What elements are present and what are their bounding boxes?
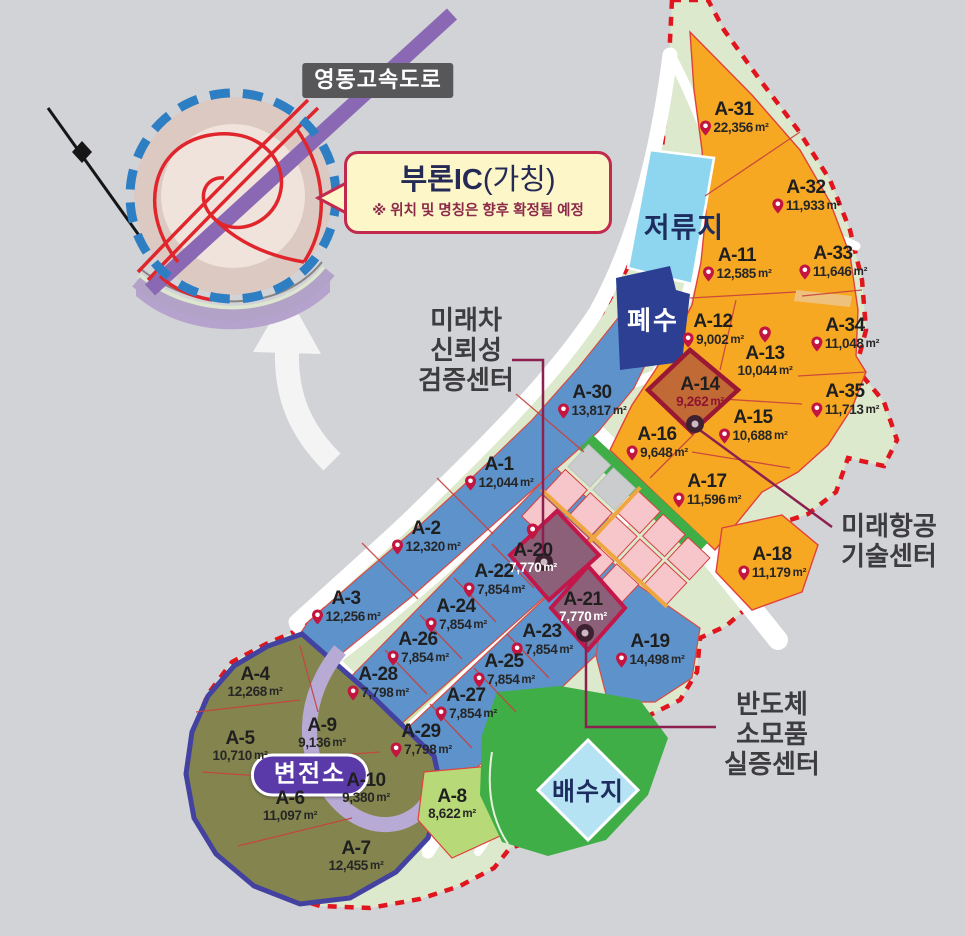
lot-area: 9,002m² — [682, 332, 744, 348]
lot-id: A-3 — [312, 589, 381, 609]
map-pin-icon — [616, 652, 628, 668]
lot-label-A-30: A-3013,817m² — [558, 383, 627, 419]
lot-area: 11,933m² — [772, 198, 840, 214]
map-pin-icon — [347, 685, 359, 701]
lot-area: 8,622m² — [428, 807, 476, 821]
lot-id: A-14 — [676, 375, 724, 395]
lot-id: A-25 — [473, 652, 535, 672]
lot-area: 10,688m² — [719, 428, 788, 444]
lot-id: A-32 — [772, 178, 840, 198]
highway-label: 영동고속도로 — [302, 63, 453, 98]
lot-area: 11,048m² — [811, 336, 879, 352]
lot-area: 12,256m² — [312, 609, 381, 625]
site-plan-map: 영동고속도로 부론IC(가칭) ※ 위치 및 명칭은 향후 확정될 예정 저류지… — [0, 0, 966, 936]
map-pin-icon — [673, 492, 685, 508]
lot-label-A-5: A-510,710m² — [213, 729, 268, 763]
highway-label-pill: 영동고속도로 — [302, 62, 453, 94]
lot-area: 7,798m² — [390, 742, 452, 758]
lot-id: A-30 — [558, 383, 627, 403]
lot-area: 12,320m² — [392, 539, 461, 555]
lot-area: 11,179m² — [738, 565, 806, 581]
lot-label-A-35: A-3511,713m² — [811, 382, 879, 418]
lot-label-A-9: A-99,136m² — [298, 716, 346, 750]
lot-label-A-25: A-257,854m² — [473, 652, 535, 688]
lot-area: 9,136m² — [298, 736, 346, 750]
lot-label-A-4: A-412,268m² — [228, 665, 283, 699]
map-pin-icon — [811, 336, 823, 352]
lot-label-A-31: A-3122,356m² — [700, 100, 769, 136]
lot-label-A-33: A-3311,646m² — [799, 244, 867, 280]
lot-label-A-24: A-247,854m² — [425, 597, 487, 633]
map-pin-icon — [759, 326, 772, 343]
lot-id: A-28 — [347, 665, 409, 685]
lot-area: 14,498m² — [616, 652, 685, 668]
lot-id: A-7 — [329, 839, 384, 859]
lot-area: 9,380m² — [342, 791, 390, 805]
callout-title: 부론IC(가칭) — [400, 166, 555, 195]
lot-id: A-19 — [616, 632, 685, 652]
lot-area: 7,854m² — [435, 706, 497, 722]
lot-id: A-16 — [626, 425, 688, 445]
lot-label-A-15: A-1510,688m² — [719, 408, 788, 444]
lot-area: 10,710m² — [213, 749, 268, 763]
lot-id: A-20 — [509, 541, 557, 561]
map-pin-icon — [700, 120, 712, 136]
lot-id: A-33 — [799, 244, 867, 264]
map-pin-icon — [703, 266, 715, 282]
lot-id: A-29 — [390, 722, 452, 742]
lot-id: A-10 — [342, 771, 390, 791]
annotation-future-aviation: 미래항공 기술센터 — [841, 511, 937, 571]
lot-id: A-21 — [559, 590, 607, 610]
map-pin-icon — [738, 565, 750, 581]
lot-id: A-15 — [719, 408, 788, 428]
lot-label-A-22: A-227,854m² — [463, 562, 525, 598]
lot-id: A-1 — [465, 455, 534, 475]
lot-area: 12,455m² — [329, 859, 384, 873]
lot-label-A-14: A-149,262m² — [676, 375, 724, 409]
annotation-semiconductor: 반도체 소모품 실증센터 — [724, 689, 820, 779]
lot-area: 7,798m² — [347, 685, 409, 701]
lot-id: A-5 — [213, 729, 268, 749]
map-pin-icon — [682, 332, 694, 348]
lot-label-A-32: A-3211,933m² — [772, 178, 840, 214]
lot-label-A-11: A-1112,585m² — [703, 246, 772, 282]
lot-label-A-18: A-1811,179m² — [738, 545, 806, 581]
map-pin-icon — [558, 403, 570, 419]
map-pin-icon — [526, 523, 539, 540]
lot-label-A-28: A-287,798m² — [347, 665, 409, 701]
map-pin-icon — [390, 742, 402, 758]
lot-area: 22,356m² — [700, 120, 769, 136]
lot-id: A-17 — [673, 472, 741, 492]
lot-label-A-3: A-312,256m² — [312, 589, 381, 625]
map-pin-icon — [392, 539, 404, 555]
map-pin-icon — [772, 198, 784, 214]
lot-label-A-2: A-212,320m² — [392, 519, 461, 555]
lot-id: A-31 — [700, 100, 769, 120]
lot-id: A-34 — [811, 316, 879, 336]
lot-id: A-26 — [387, 630, 449, 650]
lot-area: 11,097m² — [263, 809, 317, 823]
lot-id: A-4 — [228, 665, 283, 685]
map-pin-icon — [435, 706, 447, 722]
lot-id: A-8 — [428, 787, 476, 807]
annotation-future-car: 미래차 신뢰성 검증센터 — [418, 305, 514, 395]
lot-id: A-18 — [738, 545, 806, 565]
lot-label-A-29: A-297,798m² — [390, 722, 452, 758]
map-pin-icon — [799, 264, 811, 280]
lot-area: 12,044m² — [465, 475, 534, 491]
lot-label-A-26: A-267,854m² — [387, 630, 449, 666]
lot-id: A-27 — [435, 686, 497, 706]
lot-area: 9,648m² — [626, 445, 688, 461]
lot-label-A-13: A-1310,044m² — [738, 326, 793, 378]
lot-area: 9,262m² — [676, 395, 724, 409]
lot-label-A-1: A-112,044m² — [465, 455, 534, 491]
lot-id: A-6 — [263, 789, 317, 809]
lot-id: A-13 — [738, 344, 793, 364]
map-pin-icon — [759, 326, 772, 343]
lot-area: 11,646m² — [799, 264, 867, 280]
lot-area: 11,713m² — [811, 402, 879, 418]
lot-id: A-11 — [703, 246, 772, 266]
lot-id: A-12 — [682, 312, 744, 332]
lot-label-A-6: A-611,097m² — [263, 789, 317, 823]
lot-id: A-35 — [811, 382, 879, 402]
map-pin-icon — [465, 475, 477, 491]
lot-id: A-23 — [511, 622, 573, 642]
lot-label-A-34: A-3411,048m² — [811, 316, 879, 352]
lot-area: 11,596m² — [673, 492, 741, 508]
map-pin-icon — [811, 402, 823, 418]
lot-area: 12,585m² — [703, 266, 772, 282]
map-pin-icon — [526, 523, 539, 540]
callout-note: ※ 위치 및 명칭은 향후 확정될 예정 — [372, 199, 584, 220]
lot-area: 12,268m² — [228, 685, 283, 699]
lot-id: A-2 — [392, 519, 461, 539]
lot-area: 10,044m² — [738, 364, 793, 378]
lot-id: A-9 — [298, 716, 346, 736]
lot-label-A-7: A-712,455m² — [329, 839, 384, 873]
reservoir-label: 배수지 — [552, 772, 624, 808]
lot-id: A-22 — [463, 562, 525, 582]
retention-pond-label: 저류지 — [644, 206, 724, 246]
wastewater-label: 폐수 — [627, 301, 679, 338]
lot-label-A-16: A-169,648m² — [626, 425, 688, 461]
interchange-callout: 부론IC(가칭) ※ 위치 및 명칭은 향후 확정될 예정 — [344, 151, 612, 234]
lot-label-A-17: A-1711,596m² — [673, 472, 741, 508]
map-pin-icon — [626, 445, 638, 461]
lot-label-A-19: A-1914,498m² — [616, 632, 685, 668]
lot-id: A-24 — [425, 597, 487, 617]
map-pin-icon — [719, 428, 731, 444]
lot-label-A-21: A-217,770m² — [559, 590, 607, 624]
lot-label-A-12: A-129,002m² — [682, 312, 744, 348]
lot-label-A-10: A-109,380m² — [342, 771, 390, 805]
lot-label-A-8: A-88,622m² — [428, 787, 476, 821]
map-pin-icon — [312, 609, 324, 625]
lot-area: 13,817m² — [558, 403, 627, 419]
lot-label-A-27: A-277,854m² — [435, 686, 497, 722]
